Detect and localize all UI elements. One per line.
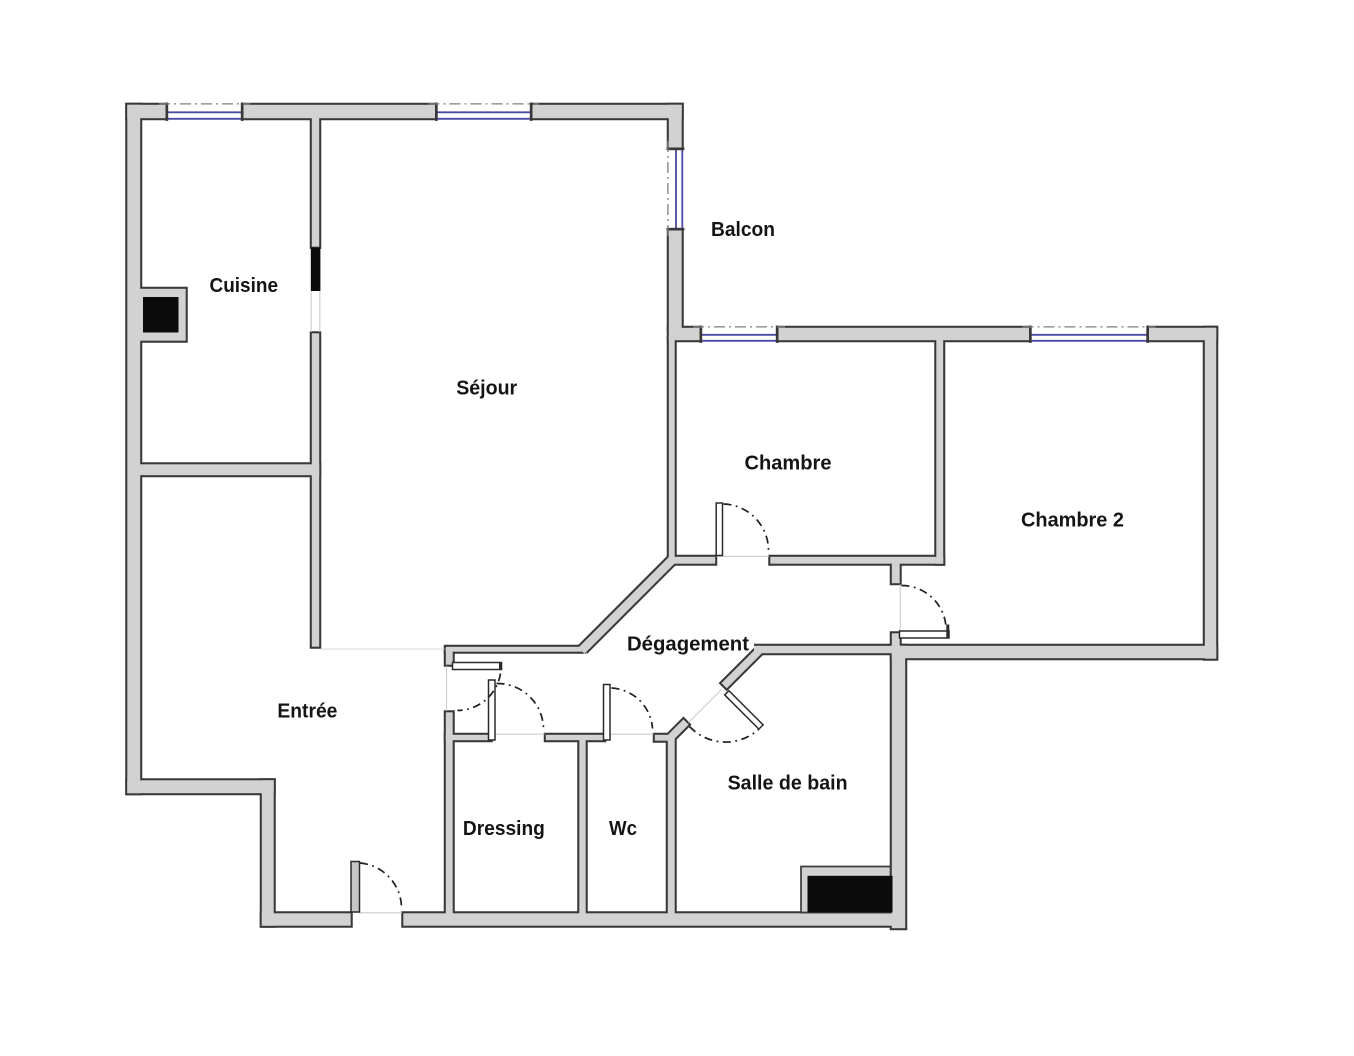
svg-text:Wc: Wc	[609, 818, 637, 840]
svg-text:Chambre: Chambre	[745, 453, 832, 475]
svg-text:Balcon: Balcon	[711, 219, 775, 241]
svg-text:Chambre 2: Chambre 2	[1021, 510, 1124, 532]
svg-text:Séjour: Séjour	[456, 378, 517, 400]
svg-text:Dégagement: Dégagement	[627, 634, 749, 656]
svg-text:Salle de bain: Salle de bain	[728, 773, 848, 795]
svg-text:Entrée: Entrée	[277, 701, 337, 723]
svg-text:Dressing: Dressing	[463, 818, 545, 840]
svg-text:Cuisine: Cuisine	[210, 275, 279, 297]
